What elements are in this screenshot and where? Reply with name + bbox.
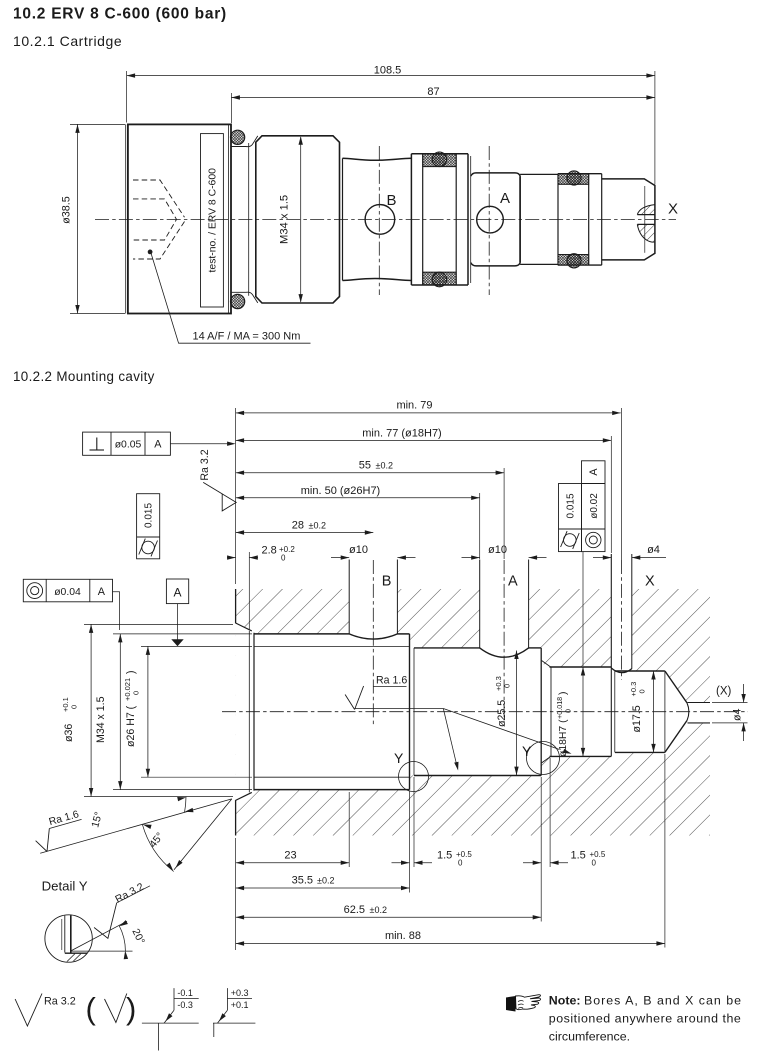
svg-text:test-no. / ERV 8 C-600: test-no. / ERV 8 C-600 xyxy=(208,168,219,273)
svg-text:0: 0 xyxy=(458,859,463,868)
svg-text:±0.2: ±0.2 xyxy=(370,905,387,915)
svg-text:ø4: ø4 xyxy=(732,709,744,721)
svg-text:0: 0 xyxy=(592,859,597,868)
svg-text:10.2 ERV 8 C-600 (600 bar): 10.2 ERV 8 C-600 (600 bar) xyxy=(13,6,227,23)
svg-text:Y: Y xyxy=(394,750,404,766)
svg-text:+0.021: +0.021 xyxy=(123,678,132,701)
svg-text:min. 77 (ø18H7): min. 77 (ø18H7) xyxy=(362,428,441,440)
svg-text:+0.2: +0.2 xyxy=(279,545,295,554)
svg-text:0: 0 xyxy=(503,684,512,688)
svg-text:X: X xyxy=(645,574,655,590)
svg-text:Ra 1.6: Ra 1.6 xyxy=(376,675,407,687)
svg-text:35.5: 35.5 xyxy=(292,875,313,887)
svg-text:min. 88: min. 88 xyxy=(385,930,421,942)
svg-text:M34 x 1.5: M34 x 1.5 xyxy=(278,195,290,244)
svg-text:-0.3: -0.3 xyxy=(177,1000,193,1010)
svg-text:): ) xyxy=(125,670,137,674)
svg-text:X: X xyxy=(668,201,678,218)
svg-text:+0.018: +0.018 xyxy=(555,697,564,719)
svg-text:2.8: 2.8 xyxy=(262,545,277,557)
svg-text:ø0.02: ø0.02 xyxy=(589,493,600,519)
svg-text:0: 0 xyxy=(638,689,647,693)
svg-text:A: A xyxy=(173,586,181,600)
svg-text:ø25.5: ø25.5 xyxy=(496,700,508,727)
svg-text:87: 87 xyxy=(427,86,439,98)
svg-text:1.5: 1.5 xyxy=(571,849,586,861)
svg-text:ø10: ø10 xyxy=(349,544,368,556)
svg-text:A: A xyxy=(588,468,600,476)
svg-text:28: 28 xyxy=(292,520,304,532)
svg-text:ø0.04: ø0.04 xyxy=(54,587,81,598)
svg-text:Ra 3.2: Ra 3.2 xyxy=(44,996,76,1008)
svg-text:min. 79: min. 79 xyxy=(396,400,432,412)
svg-text:+0.3: +0.3 xyxy=(231,988,249,998)
svg-text:ø10: ø10 xyxy=(488,544,507,556)
svg-text:62.5: 62.5 xyxy=(344,904,365,916)
svg-text:ø26 H7 (: ø26 H7 ( xyxy=(125,705,137,747)
svg-text:min. 50 (ø26H7): min. 50 (ø26H7) xyxy=(301,485,380,497)
svg-text:positioned anywhere around the: positioned anywhere around the xyxy=(549,1012,741,1026)
svg-text:0: 0 xyxy=(281,554,286,563)
svg-text:circumference.: circumference. xyxy=(549,1030,630,1044)
svg-text:0: 0 xyxy=(564,709,573,713)
svg-text:Ra 3.2: Ra 3.2 xyxy=(199,449,211,480)
svg-text:1.5: 1.5 xyxy=(437,849,452,861)
svg-text:+0.5: +0.5 xyxy=(456,850,472,859)
svg-text:0: 0 xyxy=(70,705,79,709)
svg-text:ø0.05: ø0.05 xyxy=(115,440,142,451)
svg-text:Detail Y: Detail Y xyxy=(42,879,88,894)
svg-text:Note:: Note: xyxy=(549,994,581,1008)
svg-text:): ) xyxy=(126,991,136,1026)
svg-text:M34 x 1.5: M34 x 1.5 xyxy=(95,696,107,743)
svg-text:14 A/F / MA = 300 Nm: 14 A/F / MA = 300 Nm xyxy=(193,331,301,343)
svg-text:+0.5: +0.5 xyxy=(590,850,606,859)
svg-text:0.015: 0.015 xyxy=(144,503,155,528)
svg-text:B: B xyxy=(387,192,397,209)
svg-text:ø17.5: ø17.5 xyxy=(631,705,643,732)
svg-text:(: ( xyxy=(86,991,97,1026)
svg-text:): ) xyxy=(558,692,569,695)
svg-text:-0.1: -0.1 xyxy=(177,988,193,998)
svg-text:A: A xyxy=(508,574,518,590)
svg-text:B: B xyxy=(382,574,392,590)
svg-text:ø38.5: ø38.5 xyxy=(61,196,73,224)
svg-text:+0.1: +0.1 xyxy=(231,1000,249,1010)
svg-text:A: A xyxy=(154,439,162,451)
svg-text:±0.2: ±0.2 xyxy=(309,521,326,531)
svg-text:23: 23 xyxy=(284,849,296,861)
svg-text:ø4: ø4 xyxy=(647,544,660,556)
svg-text:(X): (X) xyxy=(716,686,732,698)
svg-text:±0.2: ±0.2 xyxy=(317,876,334,886)
svg-text:ø36: ø36 xyxy=(63,724,75,742)
svg-text:A: A xyxy=(98,586,106,598)
svg-text:A: A xyxy=(500,190,510,207)
svg-text:10.2.1 Cartridge: 10.2.1 Cartridge xyxy=(13,33,122,49)
svg-text:10.2.2 Mounting cavity: 10.2.2 Mounting cavity xyxy=(13,369,155,384)
svg-text:±0.2: ±0.2 xyxy=(376,461,393,471)
svg-text:Bores A, B and X can be: Bores A, B and X can be xyxy=(584,994,741,1008)
svg-text:108.5: 108.5 xyxy=(374,64,402,76)
svg-text:Y: Y xyxy=(522,743,532,759)
svg-text:0.015: 0.015 xyxy=(566,493,577,518)
svg-text:55: 55 xyxy=(359,460,371,472)
svg-text:0: 0 xyxy=(132,691,141,695)
